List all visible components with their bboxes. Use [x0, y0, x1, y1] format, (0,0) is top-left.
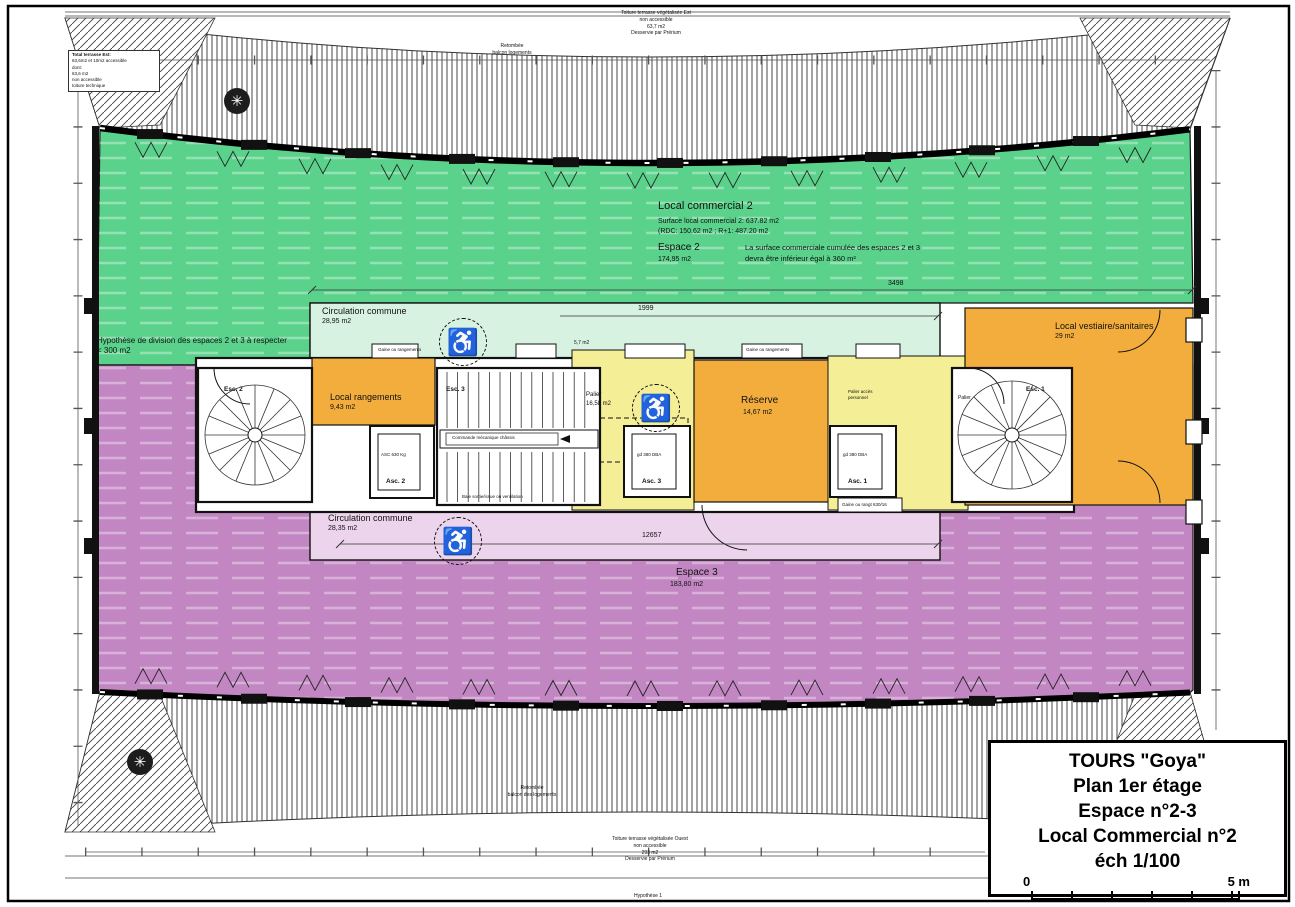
title-line: Local Commercial n°2: [991, 824, 1284, 849]
dimension-12657: 12657: [642, 532, 661, 541]
reserve-title: Réserve: [741, 395, 778, 408]
terrasse-est-note: Total terrasse Est: 63,6m2 et 10m2 acces…: [68, 50, 160, 92]
elevator-asc3-note: gd 380 DBA: [637, 452, 661, 458]
gaine-label-3: Gaine ou rangt 630/16: [842, 502, 887, 508]
scale-bar-ticks: [1031, 891, 1240, 900]
local-rangements-title: Local rangements: [330, 392, 402, 403]
elevator-asc1-label: Asc. 1: [848, 478, 867, 486]
title-line: éch 1/100: [991, 849, 1284, 874]
roof-note-west: Toiture terrasse végétalisée Ouest non a…: [612, 836, 688, 863]
palier-access-2: personnel: [848, 395, 868, 401]
espace-2-label: Espace 2: [658, 242, 700, 255]
wheelchair-icon: ♿: [434, 517, 482, 565]
title-line: TOURS "Goya": [991, 749, 1284, 774]
scale-bar: 0 5 m: [991, 876, 1284, 906]
stair-esc2-label: Esc. 2: [224, 386, 243, 394]
wheelchair-icon: ♿: [632, 384, 680, 432]
dimension-1999: 1999: [638, 305, 654, 314]
espace-2-area: 174,95 m2: [658, 256, 691, 265]
local-commercial-2-detail: (RDC: 150.62 m2 ; R+1: 487.20 m2: [658, 228, 768, 237]
palier-small-area: 5,7 m2: [574, 340, 589, 346]
vestiaire-title: Local vestiaire/sanitaires: [1055, 321, 1154, 332]
gaine-label-2: Gaine ou rangements: [746, 347, 789, 353]
tree-icon: ✳: [127, 749, 153, 775]
palier-access-1: Palier accès: [848, 389, 873, 395]
local-commercial-2-surface: Surface local commercial 2: 637.82 m2: [658, 218, 779, 227]
vestiaire-area: 29 m2: [1055, 333, 1074, 342]
reserve-area: 14,67 m2: [743, 409, 772, 418]
dimension-3498: 3498: [888, 280, 904, 289]
title-line: Espace n°2-3: [991, 799, 1284, 824]
scale-start-label: 0: [1023, 874, 1030, 889]
retombee-top-note: Retombée balcon logements: [492, 43, 531, 57]
circulation-bottom-title: Circulation commune: [328, 513, 413, 524]
gaine-label-1: Gaine ou rangements: [378, 347, 421, 353]
circulation-bottom-area: 28,35 m2: [328, 525, 357, 534]
circulation-top-title: Circulation commune: [322, 306, 407, 317]
title-line: Plan 1er étage: [991, 774, 1284, 799]
scale-end-label: 5 m: [1228, 874, 1250, 889]
hypothese-note-2: < 300 m2: [97, 346, 131, 356]
palier-right-label: Palier: [958, 395, 971, 401]
palier-center-label: Palier: [586, 392, 601, 400]
surface-rule-note-1: La surface commerciale cumulée des espac…: [745, 243, 920, 252]
elevator-asc3-label: Asc. 3: [642, 478, 661, 486]
stair-esc1-label: Esc. 1: [1026, 386, 1045, 394]
stair-esc3-label: Esc. 3: [446, 386, 465, 394]
retombee-bottom-note: Retombée balcon des logements: [508, 785, 557, 799]
elevator-asc2-label: Asc. 2: [386, 478, 405, 486]
palier-center-area: 16,58 m2: [586, 401, 611, 409]
local-commercial-2-title: Local commercial 2: [658, 200, 753, 214]
espace-3-title: Espace 3: [676, 567, 718, 580]
local-rangements-area: 9,43 m2: [330, 404, 355, 413]
stair-landing-note: Commande mécanique châssis: [452, 435, 515, 441]
elevator-asc2-note: ASC 630 Kg: [381, 452, 406, 458]
roof-note-east: Toiture terrasse végétalisée Est non acc…: [621, 10, 691, 37]
hypothese-bottom-note: Hypothèse 1: [634, 893, 662, 900]
label-layer: Toiture terrasse végétalisée Est non acc…: [0, 0, 1295, 907]
floor-plan-sheet: Toiture terrasse végétalisée Est non acc…: [0, 0, 1295, 907]
exit-bay-note: Baie sortie/issue ou ventilation: [462, 494, 523, 500]
espace-3-area: 183,80 m2: [670, 581, 703, 590]
tree-icon: ✳: [224, 88, 250, 114]
circulation-top-area: 28,95 m2: [322, 318, 351, 327]
elevator-asc1-note: gd 380 DBA: [843, 452, 867, 458]
hypothese-note-1: Hypothèse de division des espaces 2 et 3…: [97, 336, 287, 346]
title-block: TOURS "Goya" Plan 1er étage Espace n°2-3…: [988, 740, 1287, 897]
surface-rule-note-2: devra être inférieur égal à 360 m²: [745, 254, 856, 263]
wheelchair-icon: ♿: [439, 318, 487, 366]
